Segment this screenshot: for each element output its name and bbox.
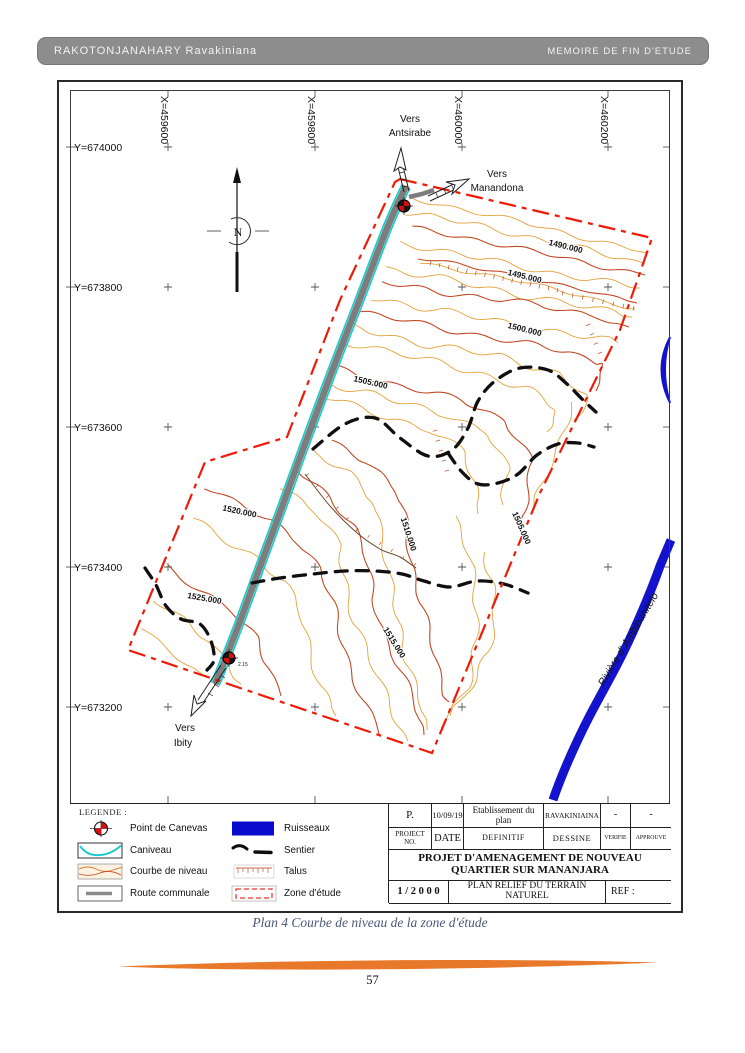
- document-type: MEMOIRE DE FIN D'ETUDE: [547, 46, 692, 57]
- title-block: P. 10/09/19 Etablissement du plan RAVAKI…: [388, 803, 670, 903]
- legend-item-talus: Talus: [230, 861, 341, 883]
- legend-item-point-de-canevas: Point de Canevas: [76, 818, 210, 840]
- legend-label: Sentier: [284, 845, 315, 856]
- scale-cell: 1 / 2 0 0 0: [389, 881, 449, 904]
- stream-icon: [230, 819, 280, 838]
- page-number: 57: [0, 973, 745, 988]
- title-block-cell: DEFINITIF: [464, 828, 544, 850]
- legend-label: Route communale: [130, 888, 210, 899]
- title-block-cell: Etablissement du plan: [464, 804, 544, 828]
- header-bar: RAKOTONJANAHARY Ravakiniana MEMOIRE DE F…: [37, 37, 709, 65]
- title-block-cell: RAVAKINIAINA: [544, 804, 601, 828]
- title-block-cell: DATE: [432, 828, 464, 850]
- legend-item-courbe-de-niveau: Courbe de niveau: [76, 861, 210, 883]
- author-name: RAKOTONJANAHARY Ravakiniana: [54, 45, 257, 57]
- title-block-cell: -: [601, 804, 631, 828]
- legend-label: Zone d'étude: [284, 888, 341, 899]
- title-block-cell: P.: [389, 804, 432, 828]
- legend-label: Talus: [284, 866, 307, 877]
- plan-name-cell: PLAN RELIEF DU TERRAIN NATUREL: [449, 881, 606, 904]
- legend-item-ruisseaux: Ruisseaux: [230, 818, 341, 840]
- contour-icon: [76, 862, 126, 881]
- footpath-icon: [230, 841, 280, 860]
- slope-icon: [230, 862, 280, 881]
- legend-item-zone-etude: Zone d'étude: [230, 883, 341, 905]
- title-block-cell: VERIFIE: [601, 828, 631, 850]
- canal-icon: [76, 841, 126, 860]
- title-block-cell: 10/09/19: [432, 804, 464, 828]
- project-title: PROJET D'AMENAGEMENT DE NOUVEAU QUARTIER…: [389, 850, 671, 881]
- legend-item-caniveau: Caniveau: [76, 840, 210, 862]
- title-block-cell: PROJECT NO.: [389, 828, 432, 850]
- title-block-cell: APPROUVE: [631, 828, 671, 850]
- legend-label: Courbe de niveau: [130, 866, 207, 877]
- legend-label: Point de Canevas: [130, 823, 207, 834]
- legend-item-sentier: Sentier: [230, 840, 341, 862]
- legend-label: Ruisseaux: [284, 823, 330, 834]
- ref-cell: REF :: [606, 881, 671, 904]
- road-icon: [76, 884, 126, 903]
- footer-divider: [118, 960, 657, 970]
- legend-item-route-communale: Route communale: [76, 883, 210, 905]
- study-zone-icon: [230, 884, 280, 903]
- title-block-cell: DESSINE: [544, 828, 601, 850]
- legend-label: Caniveau: [130, 845, 171, 856]
- title-block-cell: -: [631, 804, 671, 828]
- sheet-inner-frame: [70, 90, 670, 903]
- figure-caption: Plan 4 Courbe de niveau de la zone d'étu…: [57, 915, 683, 931]
- survey-point-icon: [76, 819, 126, 838]
- legend-title: LEGENDE :: [79, 807, 127, 817]
- legend: LEGENDE : Point de Canevas Caniveau: [70, 803, 388, 903]
